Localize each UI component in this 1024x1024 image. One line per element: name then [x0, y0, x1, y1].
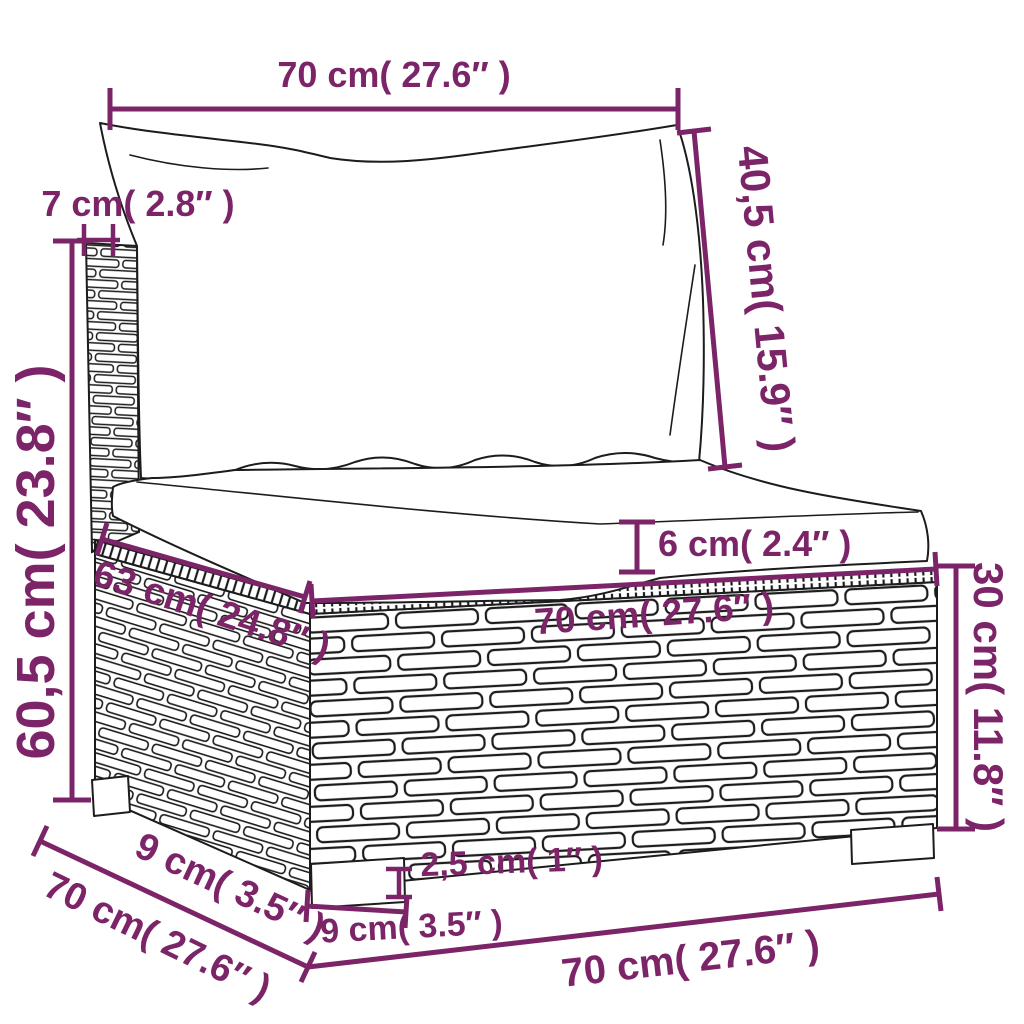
- dim-total-height: 60,5 cm( 23.8″ ): [6, 241, 91, 800]
- front-right-leg: [851, 824, 934, 864]
- dim-label: 6 cm( 2.4″ ): [658, 523, 851, 564]
- dim-label: 60,5 cm( 23.8″ ): [6, 364, 66, 759]
- dim-label: 2,5 cm( 1″ ): [420, 840, 604, 884]
- front-left-leg: [311, 858, 405, 908]
- back-cushion: [100, 123, 704, 479]
- back-left-leg: [92, 776, 130, 816]
- dim-tick: [937, 877, 941, 911]
- dim-back-cushion-width: 70 cm( 27.6″ ): [110, 54, 678, 130]
- diagram-canvas: 70 cm( 27.6″ ) 7 cm( 2.8″ ) 60,5 cm( 23.…: [0, 0, 1024, 1024]
- dim-label: 7 cm( 2.8″ ): [41, 183, 234, 224]
- dim-label: 70 cm( 27.6″ ): [277, 54, 510, 95]
- dim-label: 30 cm( 11.8″ ): [965, 562, 1012, 832]
- dim-label: 40,5 cm( 15.9″ ): [729, 143, 804, 453]
- dim-base-height: 30 cm( 11.8″ ): [937, 562, 1012, 832]
- dim-label: 9 cm( 3.5″ ): [319, 903, 503, 951]
- dimension-diagram: 70 cm( 27.6″ ) 7 cm( 2.8″ ) 60,5 cm( 23.…: [0, 0, 1024, 1024]
